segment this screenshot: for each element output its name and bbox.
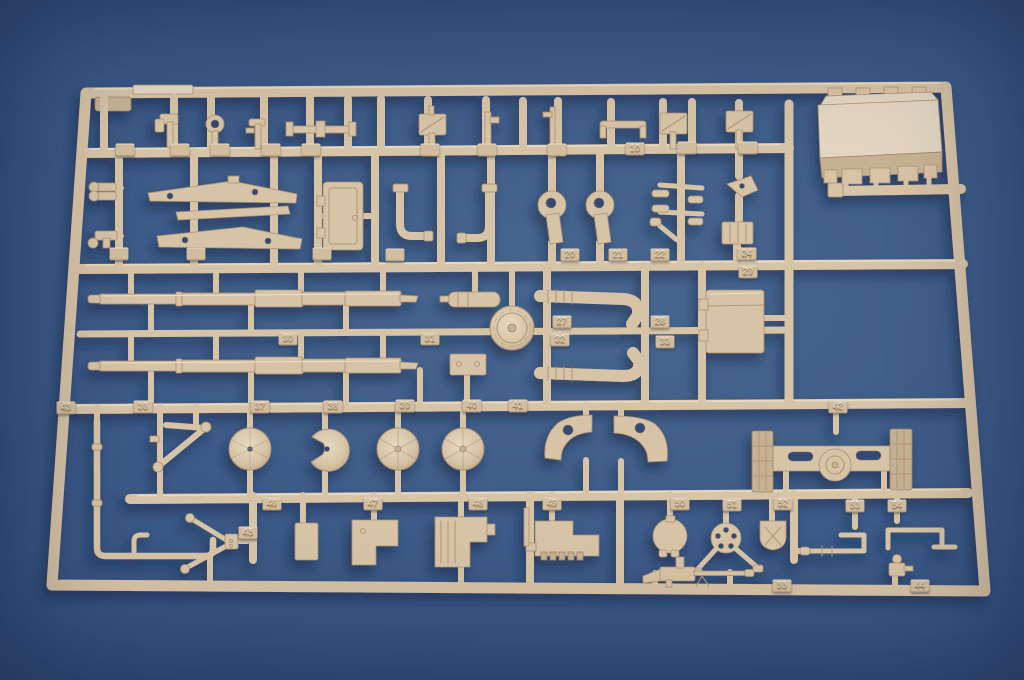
ribbed-box-part xyxy=(722,222,753,244)
knob-part-44 xyxy=(889,555,913,577)
gun-barrel-upper-half xyxy=(88,290,418,307)
small-mount-part xyxy=(450,354,486,375)
gun-barrel-lower-half xyxy=(88,357,418,374)
elbow-pipe-left xyxy=(393,184,433,241)
x-bracket-part xyxy=(727,176,758,197)
mold-text-strip xyxy=(133,85,193,94)
equipment-box-part xyxy=(699,290,764,353)
exhaust-pipe-lower xyxy=(540,353,639,381)
sprue-drawing xyxy=(0,0,1024,680)
road-wheel-39-spoked xyxy=(377,428,419,470)
left-bracket-a xyxy=(89,182,116,201)
gun-cradle-arm-left xyxy=(545,415,592,460)
round-pot-part-50 xyxy=(653,516,687,557)
handle-bracket-part xyxy=(600,121,646,138)
l-plate-part-47 xyxy=(352,520,398,565)
exhaust-pipe-upper xyxy=(540,290,638,324)
trail-plate-lower xyxy=(157,227,302,249)
photo-of-model-kit-sprue: 1020212224292728303132334336373839404142… xyxy=(0,0,1024,680)
notched-box-part-48 xyxy=(435,517,495,567)
triangle-bracket-part xyxy=(150,420,211,472)
road-wheel-38-notched xyxy=(311,429,349,471)
road-wheel-37 xyxy=(229,428,271,470)
pipe-part-53 xyxy=(800,535,864,556)
gun-cradle-arm-right xyxy=(614,416,668,462)
tool-cluster xyxy=(650,185,703,240)
sight-mount-part-a xyxy=(419,106,446,149)
sprue xyxy=(52,83,985,591)
hub-rosette-disc xyxy=(490,306,534,350)
curl-bracket-b xyxy=(586,191,614,244)
left-bracket-b xyxy=(88,231,117,248)
hatch-door-part xyxy=(317,182,363,250)
curl-bracket-a xyxy=(538,191,566,244)
machine-gun-part-55 xyxy=(643,557,754,587)
recoil-cylinder-part xyxy=(440,292,500,307)
road-wheel-40-spoked xyxy=(442,428,484,470)
l-rod-part xyxy=(543,107,555,149)
hull-box-part xyxy=(818,87,942,192)
generator-part-49 xyxy=(524,508,599,560)
shield-part-52 xyxy=(760,521,786,550)
axle-beam-part xyxy=(752,429,912,492)
post-part xyxy=(485,112,499,149)
elbow-pipe-right xyxy=(457,184,497,243)
spoked-hub-with-arms-51 xyxy=(692,523,763,575)
pipe-part-54 xyxy=(888,530,955,548)
small-box-part-46 xyxy=(295,523,318,560)
